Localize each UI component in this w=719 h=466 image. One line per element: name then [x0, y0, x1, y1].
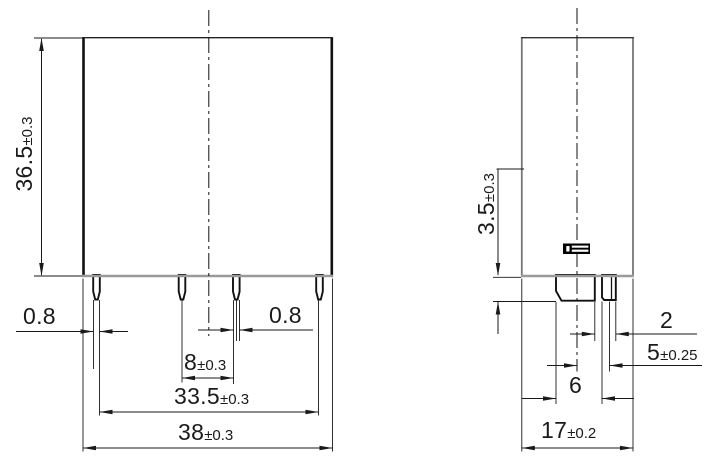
dim-value: 6	[569, 372, 582, 398]
dim-value: 0.8	[23, 303, 56, 329]
dim-value: 17	[541, 417, 567, 443]
front-pins	[93, 275, 323, 300]
front-pin-2	[179, 275, 186, 300]
dim-value: 36.5	[11, 146, 37, 192]
dim-tolerance: ±0.3	[204, 427, 233, 444]
side-latch-slot	[563, 244, 590, 255]
relay-dimension-drawing: 36.5±0.3 0.8 0.8 8±0.3 33.5±0.3 38±0.3 3…	[0, 0, 719, 466]
dim-side-blade-pin-width: 6	[569, 374, 582, 400]
dim-front-pin-span: 33.5±0.3	[174, 385, 249, 411]
dim-value: 8	[184, 349, 197, 375]
side-blade-pin	[556, 275, 595, 301]
dim-front-pin-width-right: 0.8	[269, 304, 302, 330]
side-narrow-pin	[602, 275, 616, 300]
dim-front-overall-width: 38±0.3	[178, 421, 233, 447]
dim-tolerance: ±0.3	[220, 391, 249, 408]
dim-value: 38	[178, 419, 204, 445]
dim-value: 5	[647, 339, 660, 365]
dim-side-pin-seat-height: 3.5±0.3	[475, 173, 501, 235]
dim-front-pin-pitch: 8±0.3	[184, 351, 226, 377]
front-pin-3	[233, 275, 240, 300]
dim-tolerance: ±0.25	[660, 347, 697, 364]
dim-side-overall-depth: 17±0.2	[541, 419, 596, 445]
dim-front-height: 36.5±0.3	[13, 116, 39, 191]
dim-value: 3.5	[473, 202, 499, 235]
dim-tolerance: ±0.2	[567, 425, 596, 442]
front-pin-1	[93, 275, 100, 300]
front-body-outline	[82, 37, 333, 277]
dim-front-pin-width-left: 0.8	[23, 305, 56, 331]
side-pins	[556, 275, 616, 301]
dim-value: 33.5	[174, 383, 220, 409]
dim-tolerance: ±0.3	[197, 357, 226, 374]
dim-value: 2	[660, 307, 673, 333]
front-pin-4	[316, 275, 323, 300]
dim-value: 0.8	[269, 302, 302, 328]
dim-tolerance: ±0.3	[19, 116, 36, 145]
dim-side-pin-spacing: 5±0.25	[647, 341, 698, 367]
dim-side-pin-offset: 2	[660, 309, 673, 335]
drawing-linework	[0, 0, 719, 466]
dim-tolerance: ±0.3	[481, 173, 498, 202]
side-view	[493, 8, 702, 452]
